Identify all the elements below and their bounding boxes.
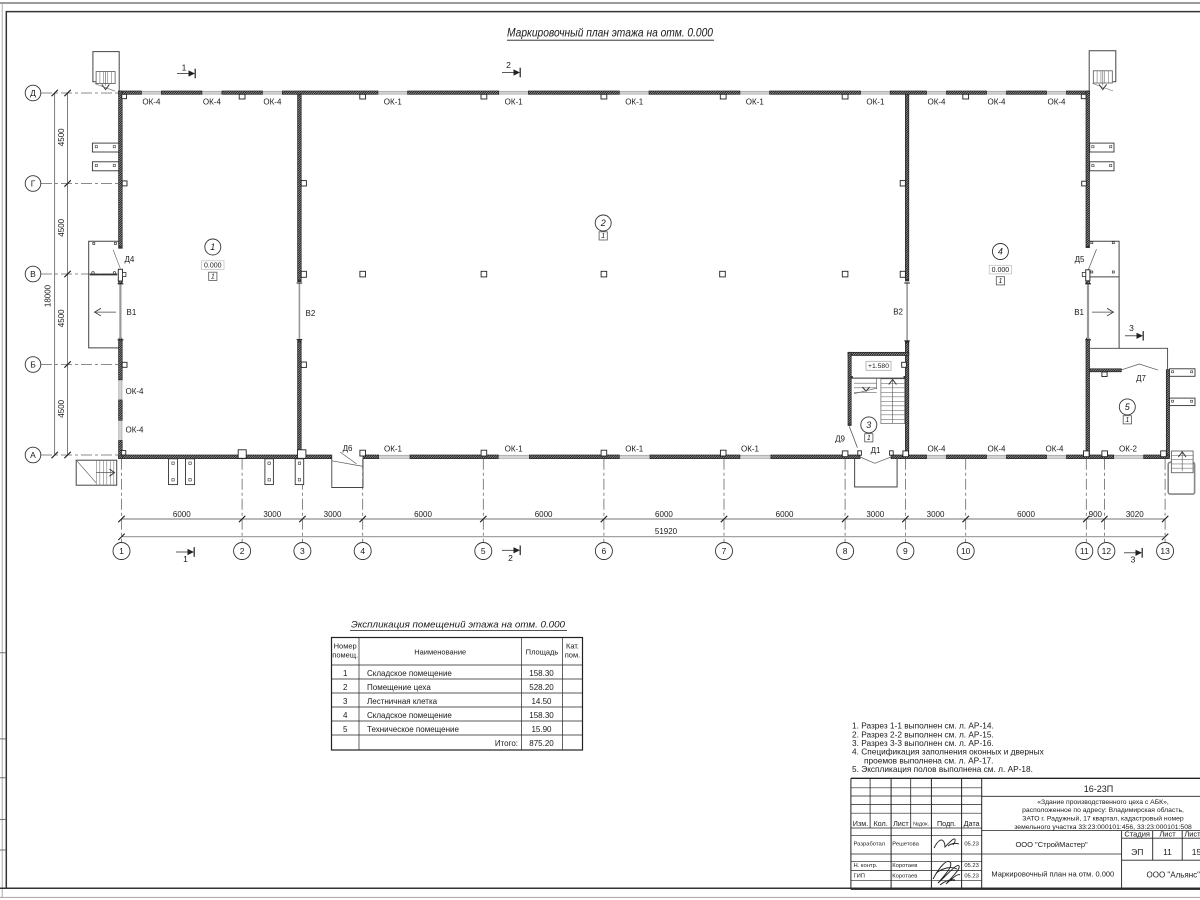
svg-text:4500: 4500 [57, 309, 66, 327]
svg-text:Маркировочный план на отм. 0.0: Маркировочный план на отм. 0.000 [991, 869, 1114, 878]
svg-text:Складское помещение: Складское помещение [367, 711, 452, 720]
svg-text:+1.580: +1.580 [868, 363, 889, 370]
svg-text:7: 7 [722, 546, 727, 556]
svg-text:1: 1 [1125, 417, 1129, 424]
svg-text:ЭП: ЭП [1131, 847, 1143, 857]
svg-text:Коротаев: Коротаев [892, 863, 917, 869]
svg-text:875.20: 875.20 [529, 739, 554, 748]
svg-text:51920: 51920 [655, 527, 678, 536]
svg-text:Листов: Листов [1184, 830, 1200, 839]
svg-text:0.000: 0.000 [992, 267, 1010, 274]
svg-text:3000: 3000 [866, 510, 884, 519]
svg-text:ОК-1: ОК-1 [741, 444, 760, 453]
svg-text:ОК-4: ОК-4 [988, 444, 1007, 453]
svg-text:№док.: №док. [913, 821, 930, 827]
svg-text:1: 1 [998, 278, 1002, 285]
svg-text:5: 5 [481, 546, 486, 556]
svg-text:3020: 3020 [1126, 510, 1144, 519]
svg-text:расположенное по адресу: Влади: расположенное по адресу: Владимирская об… [1022, 806, 1184, 814]
svg-text:ОК-4: ОК-4 [142, 97, 161, 106]
svg-text:Лестничная клетка: Лестничная клетка [367, 697, 438, 706]
svg-text:ОК-1: ОК-1 [384, 97, 403, 106]
svg-text:15: 15 [1192, 847, 1200, 857]
svg-text:5. Экспликация полов выполнена: 5. Экспликация полов выполнена см. л. АР… [852, 764, 1033, 774]
svg-text:4500: 4500 [57, 218, 66, 236]
svg-text:ОК-4: ОК-4 [263, 97, 282, 106]
svg-text:ГИП: ГИП [854, 874, 865, 880]
svg-text:6000: 6000 [414, 510, 432, 519]
svg-text:ОК-4: ОК-4 [928, 97, 947, 106]
svg-text:ОК-2: ОК-2 [1119, 444, 1138, 453]
svg-text:В2: В2 [306, 309, 316, 318]
svg-text:Стадия: Стадия [1124, 830, 1150, 839]
svg-text:ОК-4: ОК-4 [928, 444, 947, 453]
svg-text:Экспликация помещений этажа на: Экспликация помещений этажа на отм. 0.00… [351, 620, 566, 630]
svg-text:3000: 3000 [927, 510, 945, 519]
svg-text:11: 11 [1163, 847, 1172, 857]
svg-text:5: 5 [343, 725, 348, 734]
svg-text:1: 1 [183, 554, 188, 564]
svg-text:1: 1 [119, 546, 124, 556]
svg-text:16-23П: 16-23П [1084, 784, 1114, 794]
svg-text:«Здание производственного цеха: «Здание производственного цеха с АБК», [1037, 799, 1169, 806]
svg-text:ОК-4: ОК-4 [988, 97, 1007, 106]
svg-text:6000: 6000 [1017, 510, 1035, 519]
svg-text:ОК-1: ОК-1 [384, 444, 403, 453]
svg-text:ООО "Альянс": ООО "Альянс" [1147, 870, 1200, 879]
svg-text:2: 2 [240, 546, 245, 556]
svg-text:Подп.: Подп. [937, 819, 956, 828]
svg-text:1: 1 [210, 242, 215, 252]
svg-text:ОК-4: ОК-4 [203, 97, 222, 106]
svg-text:158.30: 158.30 [529, 711, 554, 720]
svg-text:ОК-1: ОК-1 [625, 97, 644, 106]
svg-text:ОК-4: ОК-4 [1046, 444, 1065, 453]
svg-text:Лист: Лист [1159, 830, 1176, 839]
svg-text:2: 2 [506, 60, 511, 70]
svg-text:3000: 3000 [263, 510, 281, 519]
svg-text:2: 2 [600, 218, 606, 228]
svg-text:Помещение цеха: Помещение цеха [367, 683, 431, 692]
svg-text:15.90: 15.90 [531, 725, 552, 734]
svg-text:05.23: 05.23 [964, 863, 979, 869]
svg-text:ОК-4: ОК-4 [126, 387, 145, 396]
svg-text:Изм.: Изм. [853, 819, 868, 828]
svg-text:Решетова: Решетова [892, 841, 919, 847]
svg-text:3000: 3000 [324, 510, 342, 519]
svg-text:ЗАТО г. Радужный, 17 квартал,: ЗАТО г. Радужный, 17 квартал, кадастровы… [1022, 815, 1184, 823]
svg-text:Дата: Дата [964, 819, 980, 828]
svg-text:Наименование: Наименование [414, 647, 466, 656]
svg-text:6000: 6000 [173, 510, 191, 519]
svg-text:6000: 6000 [776, 510, 794, 519]
svg-text:10: 10 [961, 546, 971, 556]
svg-text:помещ.: помещ. [332, 651, 358, 660]
svg-text:2: 2 [508, 553, 513, 563]
svg-text:4500: 4500 [57, 128, 66, 146]
svg-text:4: 4 [343, 711, 348, 720]
svg-text:Д6: Д6 [343, 444, 353, 453]
svg-text:12: 12 [1102, 546, 1112, 556]
svg-text:ОК-1: ОК-1 [746, 97, 765, 106]
svg-text:3: 3 [300, 546, 305, 556]
svg-text:Разработал: Разработал [854, 841, 886, 847]
svg-text:ОК-1: ОК-1 [505, 444, 524, 453]
svg-text:Кат.: Кат. [566, 642, 579, 651]
svg-text:Итого:: Итого: [495, 739, 518, 748]
svg-text:Н. контр.: Н. контр. [854, 863, 878, 869]
svg-text:Коротаев: Коротаев [892, 874, 917, 880]
svg-text:158.30: 158.30 [529, 669, 554, 678]
svg-text:Маркировочный план этажа на от: Маркировочный план этажа на отм. 0.000 [507, 26, 713, 40]
svg-text:ОК-1: ОК-1 [625, 444, 644, 453]
svg-text:пом.: пом. [565, 651, 580, 660]
svg-text:13: 13 [1160, 546, 1170, 556]
svg-text:ОК-4: ОК-4 [1048, 97, 1067, 106]
svg-text:Д1: Д1 [871, 446, 881, 455]
svg-text:6000: 6000 [655, 510, 673, 519]
svg-text:В2: В2 [893, 308, 903, 317]
svg-text:Кол.: Кол. [873, 819, 887, 828]
svg-text:528.20: 528.20 [529, 683, 554, 692]
svg-text:4: 4 [998, 247, 1003, 257]
svg-text:Б: Б [30, 360, 36, 370]
svg-text:6: 6 [602, 546, 607, 556]
svg-text:В1: В1 [127, 308, 137, 317]
svg-text:В1: В1 [1074, 308, 1084, 317]
svg-text:05.23: 05.23 [964, 841, 979, 847]
svg-text:0.000: 0.000 [204, 263, 222, 270]
svg-text:1: 1 [601, 233, 605, 240]
svg-text:ОК-1: ОК-1 [866, 97, 885, 106]
svg-text:4: 4 [360, 546, 365, 556]
svg-text:3: 3 [1131, 555, 1136, 565]
svg-text:05.23: 05.23 [964, 874, 979, 880]
svg-text:3: 3 [343, 697, 348, 706]
svg-text:1: 1 [182, 63, 187, 73]
svg-text:1: 1 [211, 274, 215, 281]
svg-text:4500: 4500 [57, 399, 66, 417]
svg-text:Техническое помещение: Техническое помещение [367, 725, 459, 734]
svg-text:А: А [30, 450, 36, 460]
svg-text:ОК-1: ОК-1 [505, 97, 524, 106]
svg-text:18000: 18000 [44, 284, 53, 307]
svg-text:Д7: Д7 [1136, 374, 1146, 383]
svg-text:ОК-4: ОК-4 [126, 426, 145, 435]
svg-text:Площадь: Площадь [526, 647, 559, 656]
svg-text:Складское помещение: Складское помещение [367, 669, 452, 678]
svg-text:8: 8 [843, 546, 848, 556]
svg-text:ООО "СтройМастер": ООО "СтройМастер" [1015, 840, 1088, 849]
svg-text:Г: Г [31, 179, 36, 189]
svg-text:3: 3 [1129, 323, 1134, 333]
svg-text:6000: 6000 [535, 510, 553, 519]
svg-text:9: 9 [903, 546, 908, 556]
svg-text:Д9: Д9 [835, 434, 845, 443]
svg-text:900: 900 [1089, 510, 1103, 519]
svg-text:Д: Д [30, 88, 36, 98]
svg-text:14.50: 14.50 [531, 697, 552, 706]
svg-text:1: 1 [867, 435, 871, 442]
svg-text:1: 1 [343, 669, 348, 678]
svg-text:Номер: Номер [334, 642, 357, 651]
svg-text:Д4: Д4 [125, 255, 135, 264]
svg-text:Д5: Д5 [1075, 255, 1085, 264]
svg-text:3: 3 [866, 420, 871, 430]
svg-text:2: 2 [343, 683, 348, 692]
svg-text:В: В [30, 269, 36, 279]
svg-text:11: 11 [1080, 546, 1089, 556]
svg-text:Лист: Лист [893, 819, 909, 828]
